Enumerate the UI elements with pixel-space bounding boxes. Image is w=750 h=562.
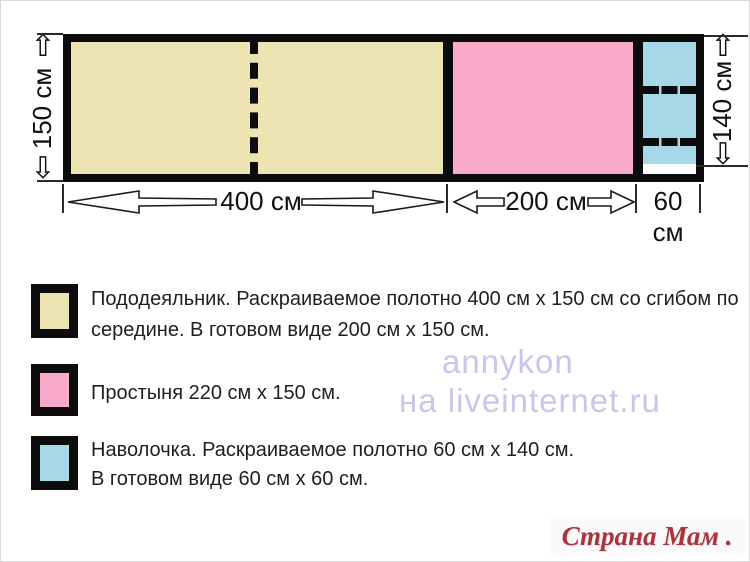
width-400-label: 400 см — [219, 186, 303, 217]
legend-item-sheet: Простыня 220 см х 150 см. — [31, 364, 341, 416]
legend-line: середине. В готовом виде 200 см х 150 см… — [91, 315, 739, 346]
panel-divider — [633, 42, 643, 174]
legend-line: Простыня 220 см х 150 см. — [91, 378, 341, 409]
legend-item-duvet: Пододеяльник. Раскраиваемое полотно 400 … — [31, 284, 739, 346]
legend-line: Наволочка. Раскраиваемое полотно 60 см х… — [91, 436, 574, 465]
height-150-label: 150 см — [28, 67, 59, 148]
arrow-up-icon: ⇧ — [710, 34, 735, 60]
dimension-arrow-right-icon — [587, 189, 635, 215]
dimension-tick — [62, 184, 64, 213]
pillow-fabric — [643, 42, 696, 164]
pillow-fold-line-2 — [643, 138, 696, 146]
watermark-liveinternet: на liveinternet.ru — [399, 382, 661, 420]
legend-line: Пододеяльник. Раскраиваемое полотно 400 … — [91, 284, 739, 315]
extension-line — [696, 165, 748, 167]
duvet-color-chip — [40, 293, 69, 329]
cutting-diagram: ⇧ 150 см ⇩ ⇧ 140 см ⇩ 400 см 200 см 60 с… — [0, 0, 750, 562]
pillow-panel — [643, 42, 696, 174]
width-200-label: 200 см — [504, 186, 588, 217]
duvet-fold-line — [250, 38, 258, 178]
legend-text: Пододеяльник. Раскраиваемое полотно 400 … — [91, 284, 739, 346]
legend-text: Простыня 220 см х 150 см. — [91, 378, 341, 416]
extension-line — [37, 33, 63, 35]
dimension-arrow-right-icon — [301, 189, 445, 215]
watermark-annykon: annykon — [442, 343, 574, 381]
sheet-panel — [453, 42, 633, 174]
pillowcase-color-chip — [40, 445, 69, 481]
extension-line — [37, 180, 63, 182]
extension-line — [704, 35, 748, 37]
height-dimension-right: ⇧ 140 см ⇩ — [705, 34, 741, 168]
width-60-label: 60 см — [637, 186, 699, 248]
legend-item-pillowcase: Наволочка. Раскраиваемое полотно 60 см х… — [31, 436, 574, 494]
arrow-down-icon: ⇩ — [30, 156, 55, 182]
sheet-color-chip — [40, 373, 69, 407]
dimension-arrow-left-icon — [453, 189, 505, 215]
legend-line: В готовом виде 60 см х 60 см. — [91, 465, 574, 494]
legend-text: Наволочка. Раскраиваемое полотно 60 см х… — [91, 436, 574, 494]
pillow-remainder-strip — [643, 164, 696, 174]
dimension-tick — [699, 184, 701, 213]
panel-divider — [443, 42, 453, 174]
dimension-arrow-left-icon — [67, 189, 217, 215]
duvet-panel — [71, 42, 443, 174]
arrow-up-icon: ⇧ — [30, 34, 55, 60]
pillow-fold-line-1 — [643, 86, 696, 94]
watermark-strana-mam: Страна Мам . ру — [549, 517, 745, 555]
height-dimension-left: ⇧ 150 см ⇩ — [25, 34, 61, 182]
legend-swatch — [31, 436, 78, 490]
legend-swatch — [31, 284, 78, 338]
dimension-tick — [446, 184, 448, 213]
legend-swatch — [31, 364, 78, 416]
fabric-rectangle — [63, 34, 704, 182]
height-140-label: 140 см — [708, 60, 739, 141]
